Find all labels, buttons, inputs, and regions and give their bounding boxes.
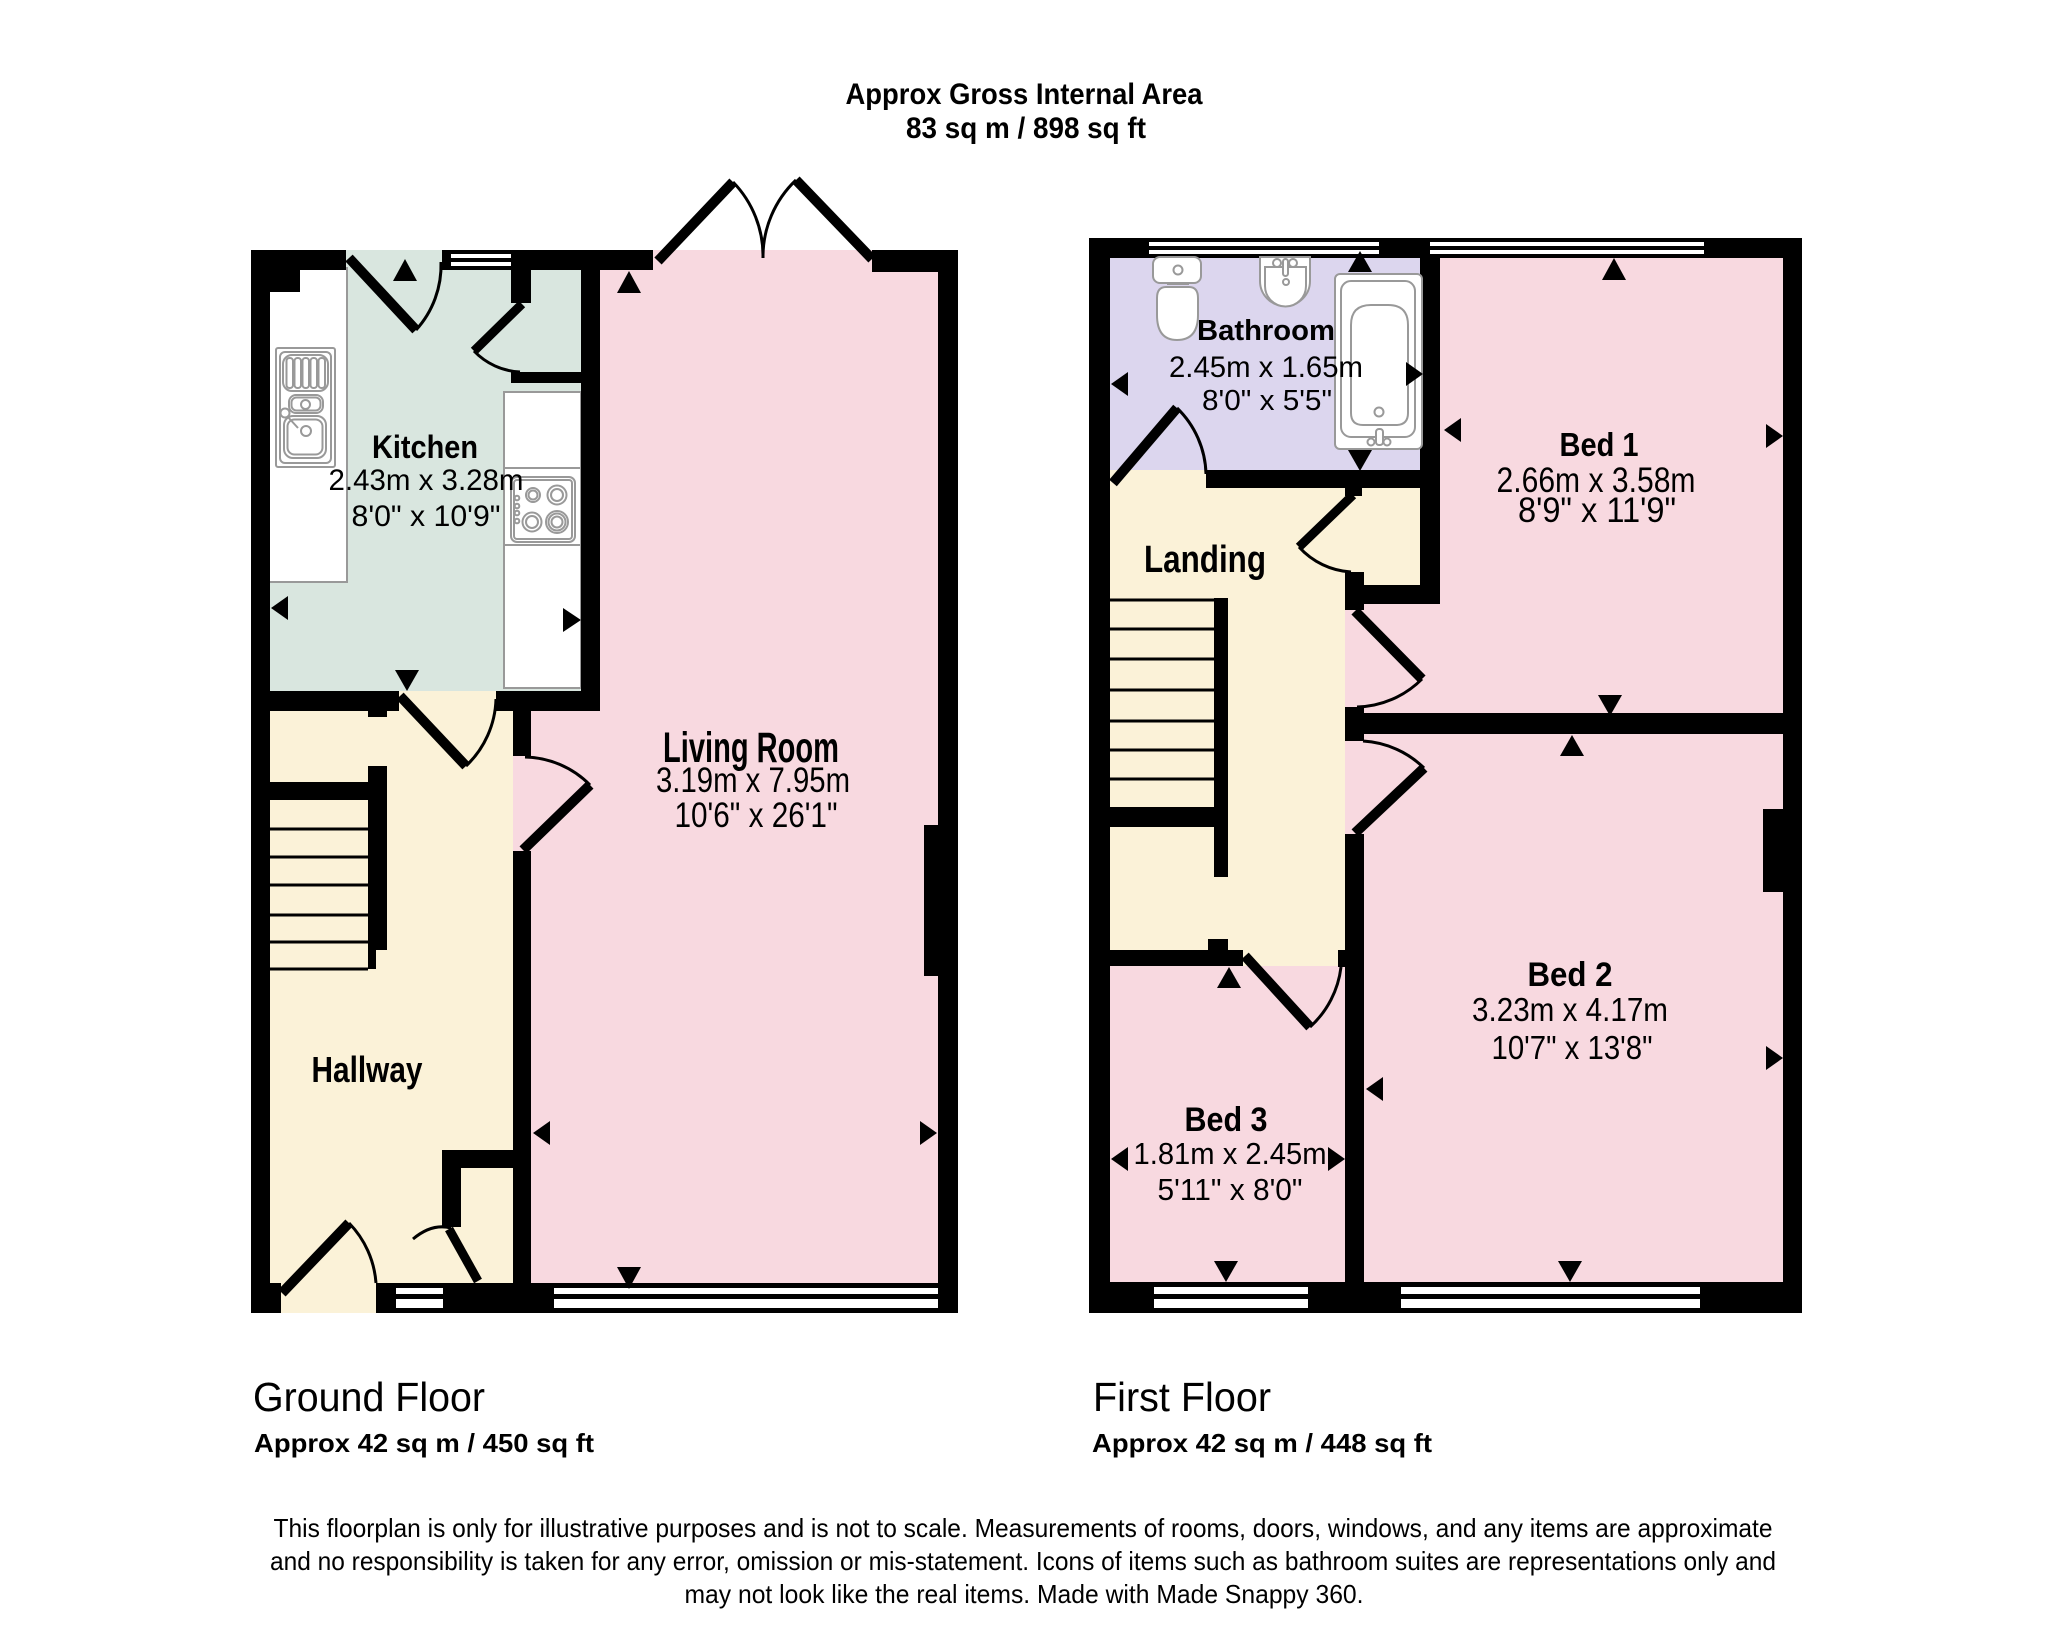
svg-text:3.23m x 4.17m: 3.23m x 4.17m xyxy=(1472,991,1668,1028)
svg-text:8'0" x 5'5": 8'0" x 5'5" xyxy=(1202,385,1332,417)
svg-text:2.45m x 1.65m: 2.45m x 1.65m xyxy=(1169,351,1363,384)
svg-text:This floorplan is only for ill: This floorplan is only for illustrative … xyxy=(274,1513,1773,1543)
svg-text:83 sq m / 898 sq ft: 83 sq m / 898 sq ft xyxy=(906,112,1146,145)
svg-text:Kitchen: Kitchen xyxy=(372,429,478,465)
svg-text:Approx 42 sq m / 448 sq ft: Approx 42 sq m / 448 sq ft xyxy=(1092,1428,1432,1458)
svg-text:Bed 3: Bed 3 xyxy=(1185,1101,1268,1139)
svg-text:Bed 2: Bed 2 xyxy=(1528,956,1613,994)
svg-text:3.19m x 7.95m: 3.19m x 7.95m xyxy=(656,761,850,800)
svg-text:10'7" x 13'8": 10'7" x 13'8" xyxy=(1492,1029,1653,1066)
svg-text:Landing: Landing xyxy=(1144,539,1266,581)
svg-text:Ground Floor: Ground Floor xyxy=(253,1374,485,1420)
svg-text:Hallway: Hallway xyxy=(312,1049,423,1090)
svg-text:8'9" x 11'9": 8'9" x 11'9" xyxy=(1518,491,1676,530)
svg-text:10'6" x 26'1": 10'6" x 26'1" xyxy=(675,796,838,835)
svg-text:First Floor: First Floor xyxy=(1093,1374,1271,1420)
svg-text:2.43m x 3.28m: 2.43m x 3.28m xyxy=(329,464,524,497)
svg-text:may not look like the real ite: may not look like the real items. Made w… xyxy=(685,1579,1364,1609)
svg-text:Approx Gross Internal Area: Approx Gross Internal Area xyxy=(846,78,1203,111)
svg-text:Bathroom: Bathroom xyxy=(1197,315,1335,347)
svg-text:5'11" x 8'0": 5'11" x 8'0" xyxy=(1158,1172,1303,1207)
svg-text:1.81m x 2.45m: 1.81m x 2.45m xyxy=(1134,1136,1327,1171)
svg-text:and no responsibility is taken: and no responsibility is taken for any e… xyxy=(270,1546,1776,1576)
svg-text:Bed 1: Bed 1 xyxy=(1560,426,1639,463)
svg-text:Approx 42 sq m / 450 sq ft: Approx 42 sq m / 450 sq ft xyxy=(254,1428,594,1458)
svg-text:8'0" x 10'9": 8'0" x 10'9" xyxy=(352,500,501,533)
